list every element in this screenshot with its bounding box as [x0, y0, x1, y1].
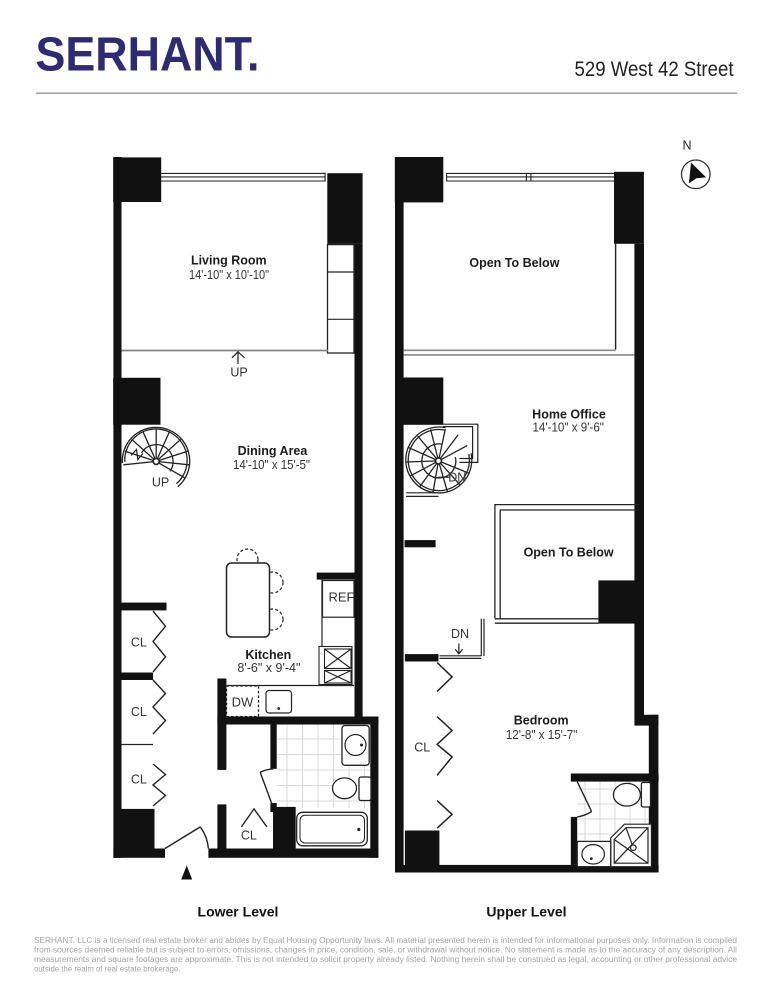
svg-text:outside the realm of real esta: outside the realm of real estate brokera… [34, 965, 181, 974]
svg-text:SERHANT. LLC is a licensed rea: SERHANT. LLC is a licensed real estate b… [34, 936, 737, 945]
svg-text:Bedroom: Bedroom [514, 714, 569, 728]
svg-text:Dining Area: Dining Area [238, 444, 309, 458]
svg-text:Upper Level: Upper Level [486, 904, 566, 920]
svg-text:529 West 42 Street: 529 West 42 Street [575, 57, 734, 81]
svg-text:DW: DW [232, 695, 254, 710]
svg-text:14'-10" x 10'-10": 14'-10" x 10'-10" [189, 268, 269, 282]
svg-text:14'-10" x 15'-5": 14'-10" x 15'-5" [233, 458, 310, 472]
svg-text:CL: CL [131, 772, 147, 786]
svg-text:Open To Below: Open To Below [524, 546, 614, 560]
svg-text:CL: CL [131, 635, 147, 649]
svg-text:CL: CL [131, 705, 147, 719]
svg-text:DN: DN [448, 471, 466, 485]
svg-text:Living Room: Living Room [191, 253, 267, 267]
svg-text:UP: UP [152, 476, 169, 490]
svg-text:measurements and square footag: measurements and square footages are app… [34, 955, 737, 964]
svg-text:CL: CL [241, 829, 257, 843]
svg-text:CL: CL [414, 740, 430, 754]
svg-text:14'-10" x 9'-6": 14'-10" x 9'-6" [532, 420, 604, 434]
svg-text:N: N [682, 139, 691, 153]
svg-text:UP: UP [230, 366, 247, 380]
svg-text:SERHANT.: SERHANT. [36, 28, 260, 82]
svg-text:12'-8" x 15'-7": 12'-8" x 15'-7" [506, 728, 578, 742]
svg-text:DN: DN [451, 627, 469, 641]
svg-text:Kitchen: Kitchen [245, 648, 291, 662]
svg-text:from sources deemed reliable: from sources deemed reliable but is subj… [34, 945, 737, 954]
svg-text:Lower Level: Lower Level [198, 904, 279, 920]
svg-text:8'-6" x 9'-4": 8'-6" x 9'-4" [237, 661, 300, 675]
svg-text:Open To Below: Open To Below [469, 256, 559, 270]
svg-text:REF: REF [329, 590, 355, 605]
